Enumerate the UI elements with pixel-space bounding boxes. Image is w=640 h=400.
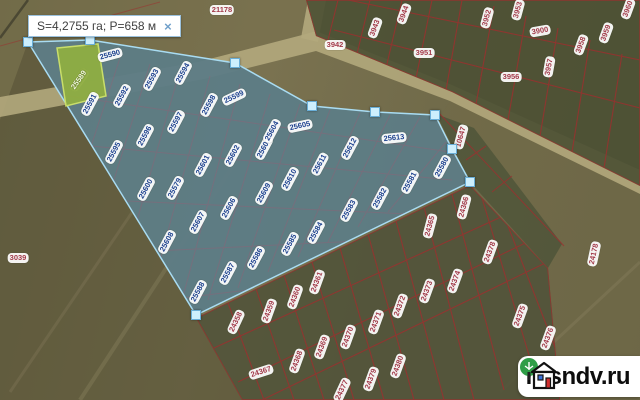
measurement-tooltip: S=4,2755 га; P=658 м × xyxy=(28,15,181,37)
selection-handle[interactable] xyxy=(370,107,380,117)
selection-handle[interactable] xyxy=(307,101,317,111)
cadastral-map-viewport[interactable]: 2559025591255922559325594255952559625597… xyxy=(0,0,640,400)
selection-handle[interactable] xyxy=(447,144,457,154)
selection-handle[interactable] xyxy=(230,58,240,68)
selection-handle[interactable] xyxy=(465,177,475,187)
selection-handles-layer xyxy=(0,0,640,400)
measurement-text: S=4,2755 га; P=658 м xyxy=(37,19,156,33)
selection-handle[interactable] xyxy=(430,110,440,120)
close-icon[interactable]: × xyxy=(164,20,172,33)
selection-handle[interactable] xyxy=(191,310,201,320)
house-tree-logo-icon xyxy=(518,356,556,390)
selection-handle[interactable] xyxy=(23,37,33,47)
site-watermark: rosndv.ru xyxy=(518,356,640,397)
